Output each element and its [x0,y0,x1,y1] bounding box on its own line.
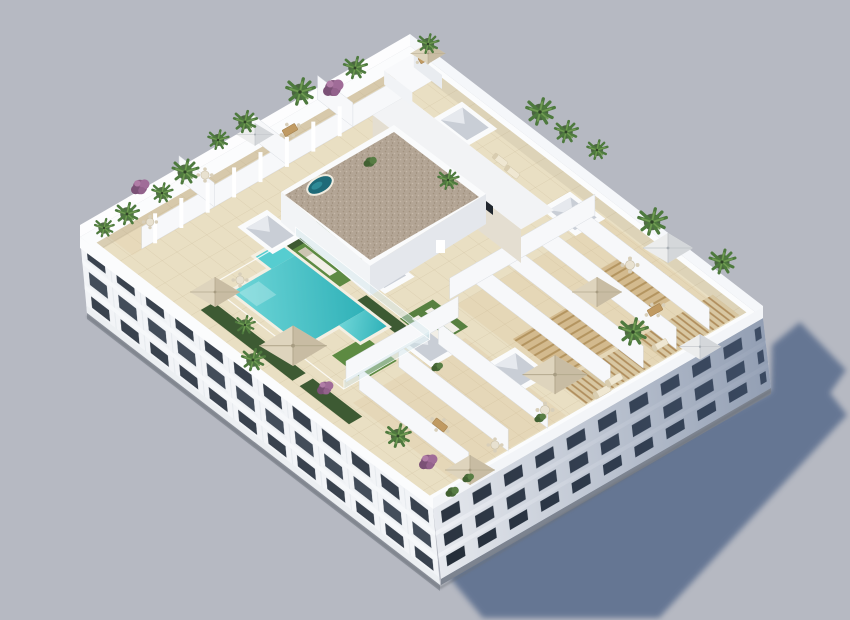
rooftop-render [0,0,850,620]
render-canvas [0,0,850,620]
chimney [436,240,445,253]
